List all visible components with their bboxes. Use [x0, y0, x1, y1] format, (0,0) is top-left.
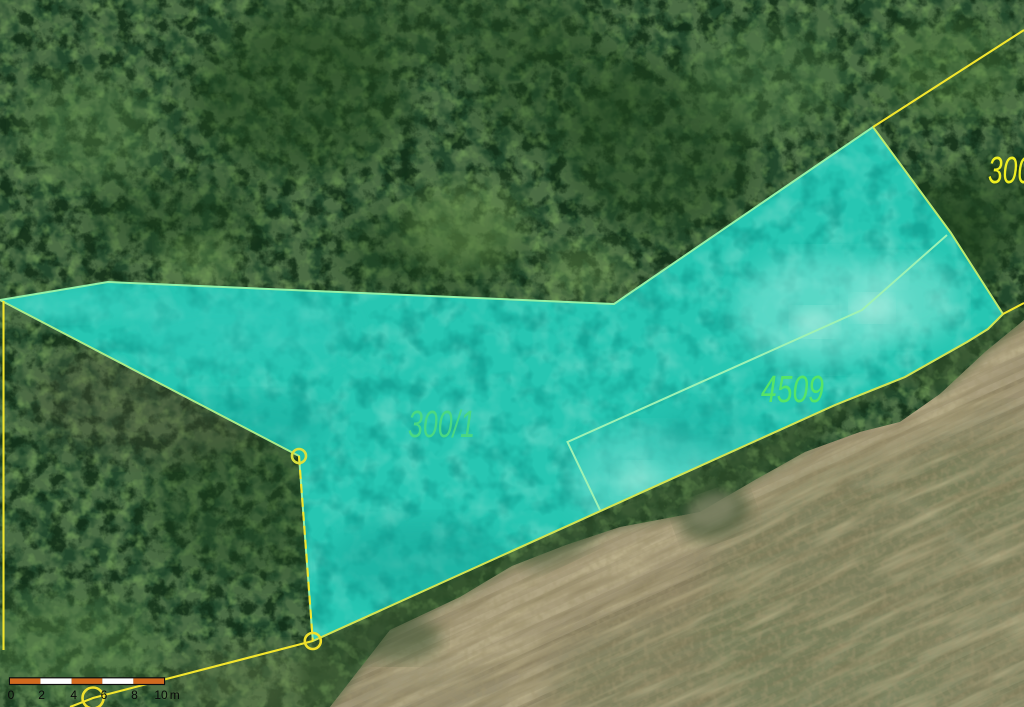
svg-text:8: 8: [131, 688, 138, 702]
svg-text:10: 10: [154, 688, 168, 702]
svg-text:m: m: [170, 688, 180, 702]
svg-text:2: 2: [38, 688, 45, 702]
svg-text:0: 0: [8, 688, 15, 702]
svg-text:300: 300: [988, 150, 1024, 192]
svg-text:300/1: 300/1: [408, 404, 475, 446]
svg-text:6: 6: [101, 688, 108, 702]
svg-text:4: 4: [70, 688, 77, 702]
svg-text:4509: 4509: [761, 369, 824, 411]
